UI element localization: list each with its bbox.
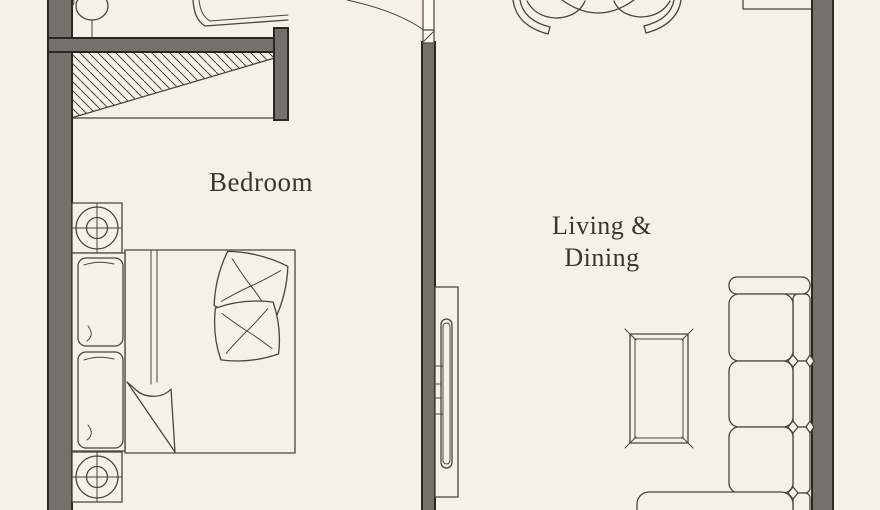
pillow-icon: [78, 258, 123, 346]
door-swing-icon: [347, 0, 434, 43]
wall-middle: [422, 42, 435, 510]
wardrobe-hatch-icon: [71, 52, 278, 118]
living-dining-room-label: Living & Dining: [512, 210, 692, 274]
wall-left: [48, 0, 72, 510]
ceiling-speaker-icon: [72, 203, 122, 253]
wall-right: [812, 0, 833, 510]
wall-bathroom: [48, 38, 288, 52]
double-bed-icon: [72, 247, 295, 453]
coffee-table-icon: [625, 329, 693, 448]
wall-stub: [274, 28, 288, 120]
vanity-icon: [193, 0, 288, 26]
dining-chair-icon: [513, 0, 585, 34]
tv-console-icon: [435, 287, 458, 497]
dining-table-icon: [562, 0, 634, 13]
throw-pillow-icon: [212, 298, 282, 363]
bedroom-room-label: Bedroom: [161, 167, 361, 198]
floor-plan: [0, 0, 880, 510]
kitchen-counter-icon: [743, 0, 812, 9]
ceiling-speaker-icon: [72, 452, 122, 502]
dining-chair-icon: [614, 0, 681, 33]
pillow-icon: [78, 352, 123, 448]
